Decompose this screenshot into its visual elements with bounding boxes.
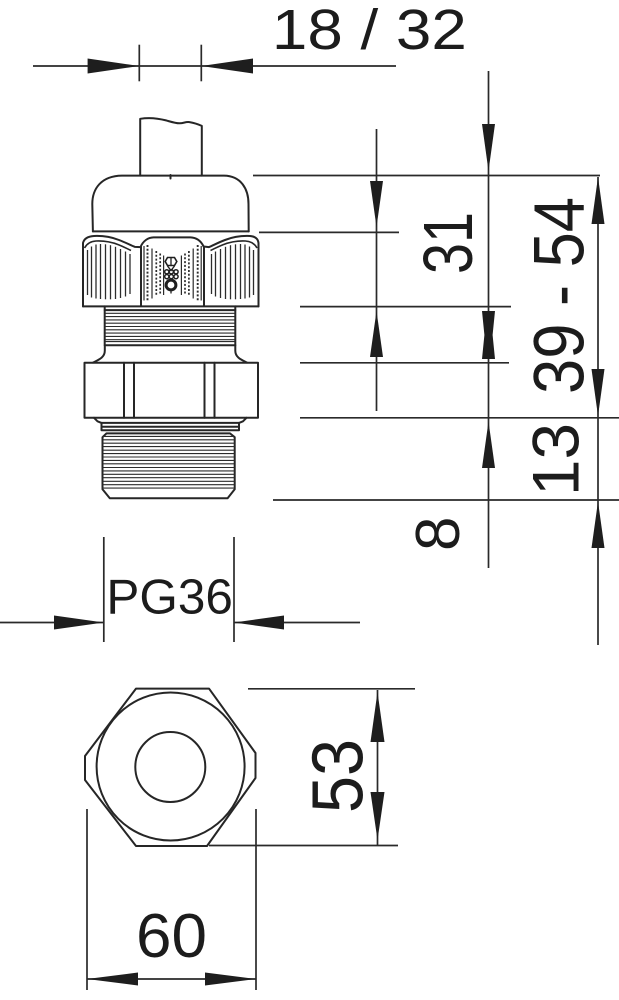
svg-text:31: 31 [409,212,487,274]
svg-text:13: 13 [519,423,593,496]
svg-text:39 - 54: 39 - 54 [521,197,600,394]
svg-text:PG36: PG36 [106,571,232,625]
svg-text:8: 8 [404,517,473,551]
svg-text:60: 60 [136,902,207,971]
svg-text:18 / 32: 18 / 32 [272,0,467,62]
svg-text:53: 53 [299,739,379,813]
